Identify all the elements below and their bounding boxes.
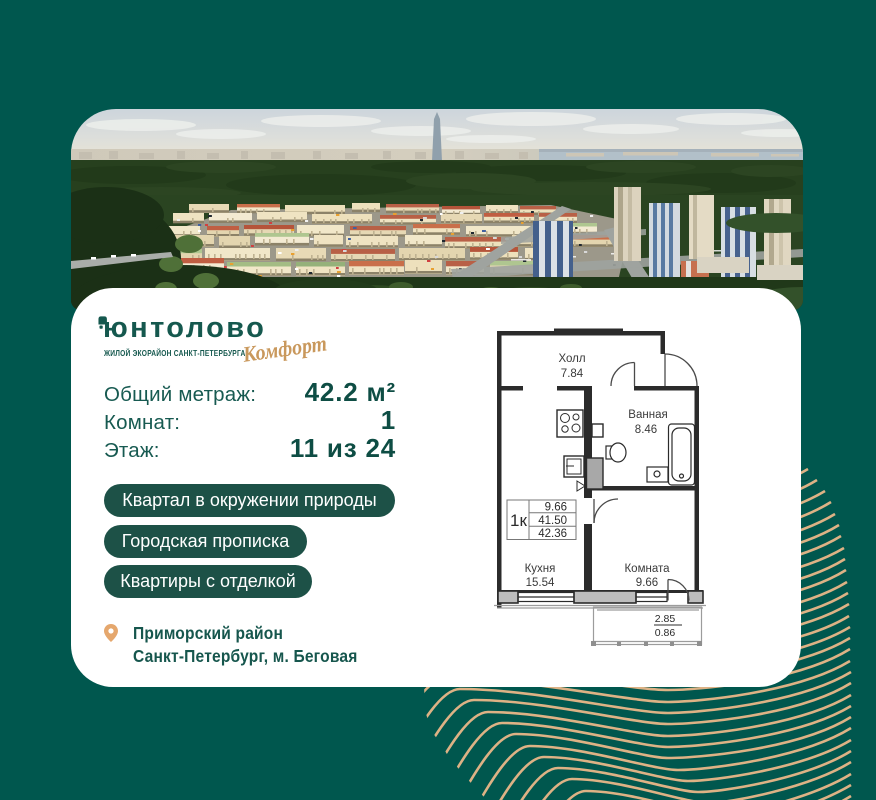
svg-text:7.84: 7.84	[561, 368, 584, 380]
svg-text:0.86: 0.86	[655, 627, 676, 639]
svg-text:2.85: 2.85	[655, 613, 676, 625]
svg-text:Кухня: Кухня	[525, 563, 556, 575]
svg-text:42.36: 42.36	[538, 528, 567, 540]
svg-text:1к: 1к	[510, 511, 527, 530]
svg-text:Комната: Комната	[624, 563, 670, 575]
svg-text:Холл: Холл	[558, 353, 585, 365]
svg-text:8.46: 8.46	[635, 424, 657, 436]
svg-text:41.50: 41.50	[538, 515, 567, 527]
svg-text:Ванная: Ванная	[628, 409, 667, 421]
svg-text:9.66: 9.66	[636, 577, 658, 589]
svg-text:15.54: 15.54	[526, 577, 555, 589]
svg-text:9.66: 9.66	[545, 502, 567, 514]
